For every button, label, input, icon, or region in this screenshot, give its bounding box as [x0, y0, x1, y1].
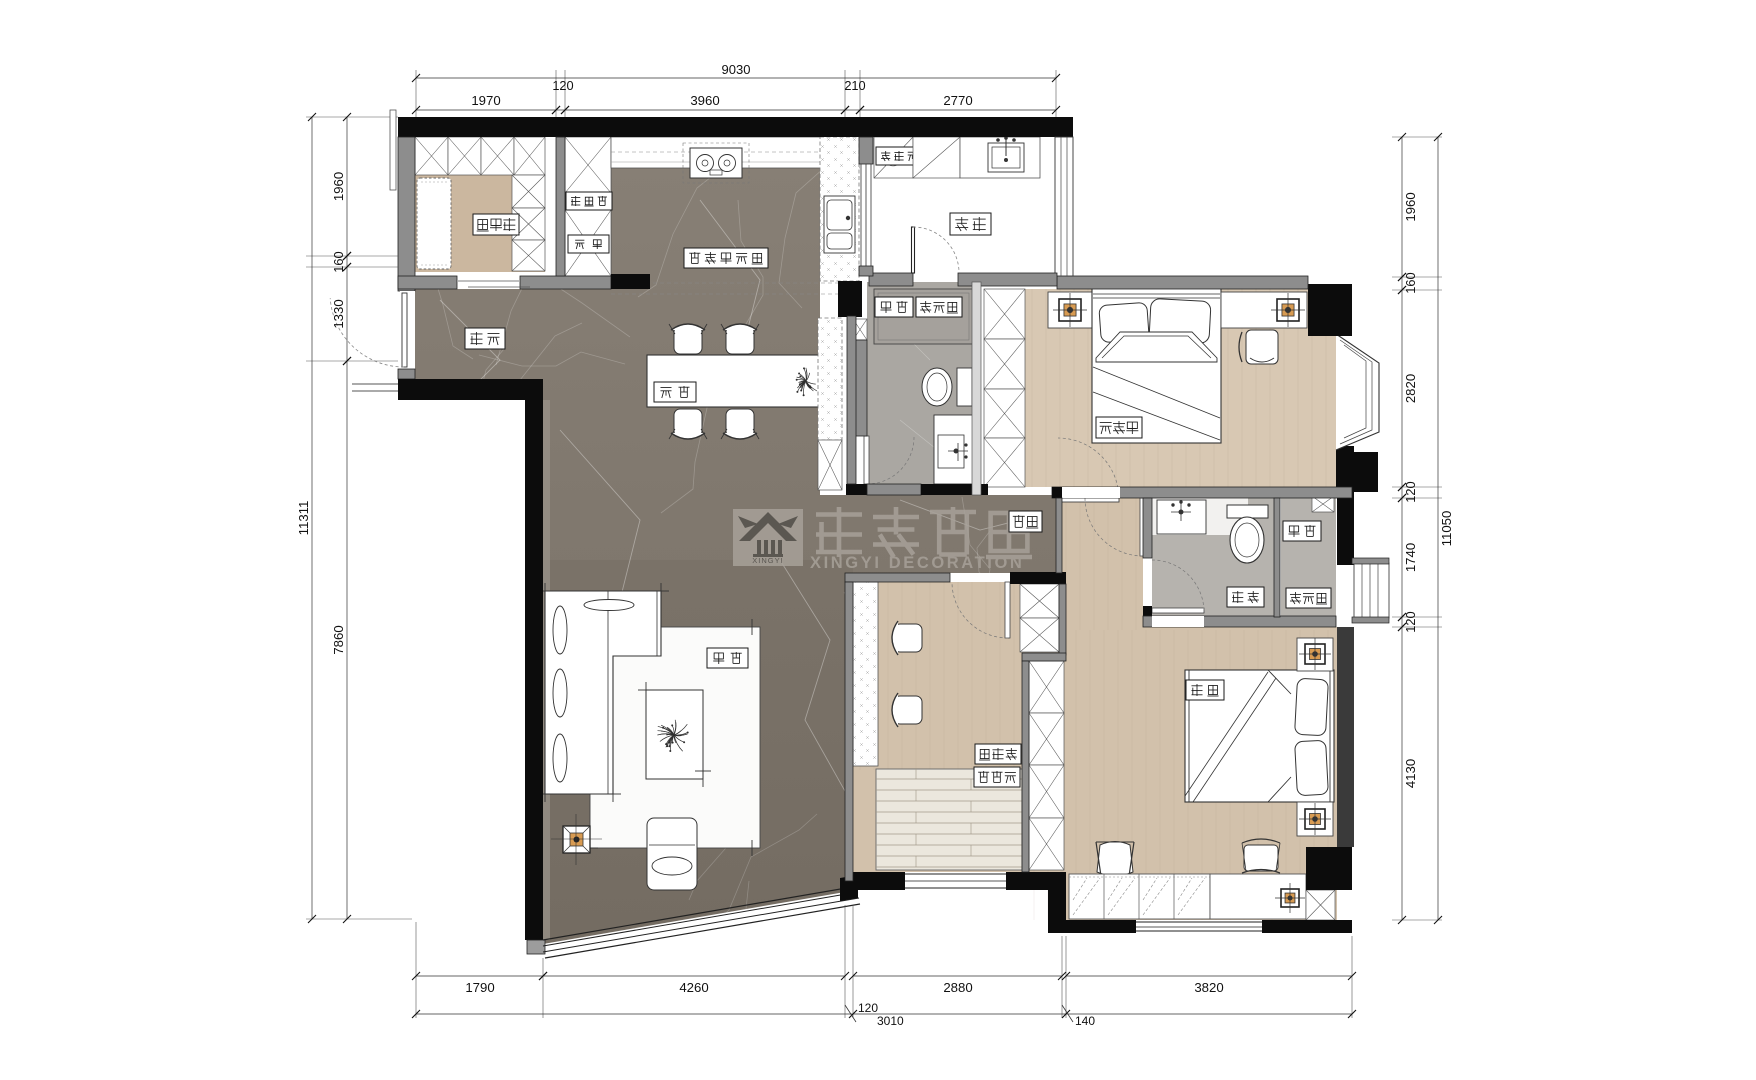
svg-text:210: 210 [844, 78, 865, 93]
svg-text:160: 160 [1403, 272, 1418, 293]
svg-text:120: 120 [1403, 611, 1418, 632]
svg-text:2770: 2770 [943, 93, 972, 108]
svg-text:2820: 2820 [1403, 374, 1418, 403]
svg-text:140: 140 [1075, 1014, 1095, 1028]
svg-text:1960: 1960 [331, 172, 346, 201]
svg-text:3960: 3960 [690, 93, 719, 108]
svg-text:7860: 7860 [331, 625, 346, 654]
svg-text:4130: 4130 [1403, 759, 1418, 788]
svg-text:1960: 1960 [1403, 192, 1418, 221]
svg-text:1330: 1330 [331, 299, 346, 328]
svg-text:1790: 1790 [465, 980, 494, 995]
svg-text:120: 120 [858, 1001, 878, 1015]
svg-text:3010: 3010 [877, 1014, 904, 1028]
svg-text:XINGYI DECORATION: XINGYI DECORATION [810, 554, 1024, 572]
svg-text:11050: 11050 [1439, 511, 1454, 547]
svg-text:4260: 4260 [679, 980, 708, 995]
svg-text:3820: 3820 [1194, 980, 1223, 995]
svg-text:1970: 1970 [471, 93, 500, 108]
svg-text:120: 120 [1403, 481, 1418, 502]
svg-text:11311: 11311 [296, 501, 311, 536]
svg-text:1740: 1740 [1403, 543, 1418, 572]
svg-text:XINGYI: XINGYI [752, 556, 783, 565]
svg-text:2880: 2880 [943, 980, 972, 995]
svg-text:120: 120 [552, 78, 573, 93]
svg-text:9030: 9030 [722, 62, 751, 77]
